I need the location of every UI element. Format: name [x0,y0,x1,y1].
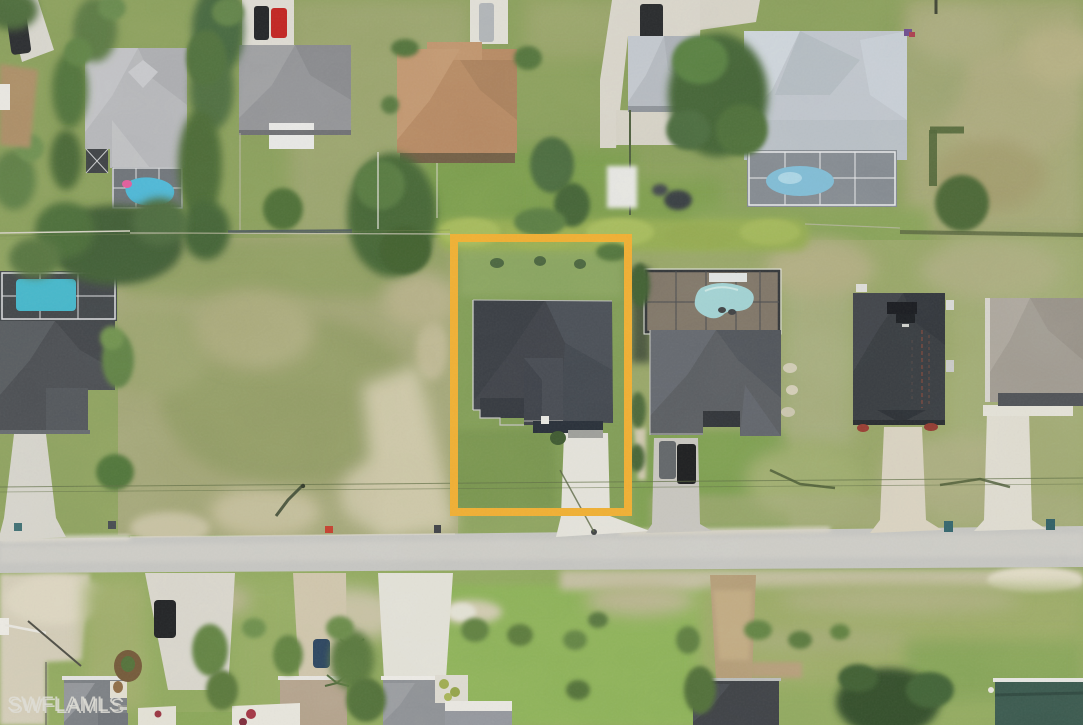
svg-text:SWFLAMLS: SWFLAMLS [7,693,123,716]
